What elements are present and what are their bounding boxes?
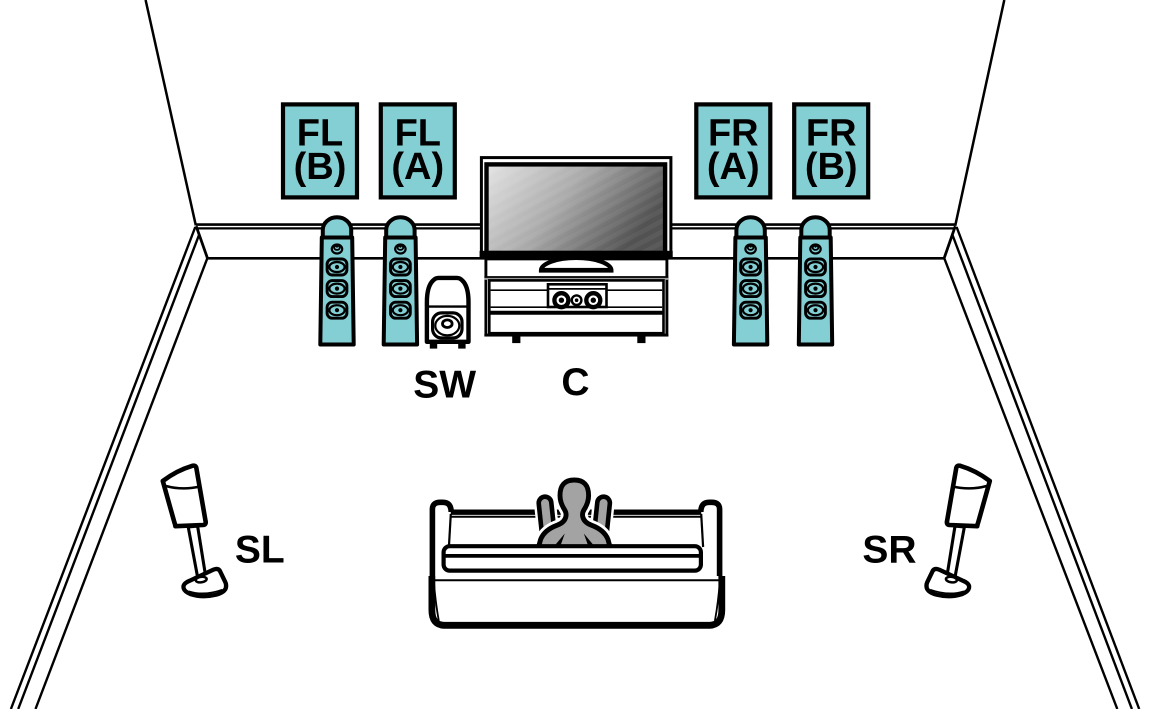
svg-text:(A): (A) xyxy=(707,146,760,188)
svg-text:(A): (A) xyxy=(391,146,444,188)
svg-text:(B): (B) xyxy=(805,146,858,188)
svg-text:(B): (B) xyxy=(294,146,347,188)
svg-text:SL: SL xyxy=(235,529,285,572)
svg-text:SR: SR xyxy=(862,529,916,572)
svg-text:SW: SW xyxy=(413,364,476,407)
svg-text:C: C xyxy=(561,361,589,404)
